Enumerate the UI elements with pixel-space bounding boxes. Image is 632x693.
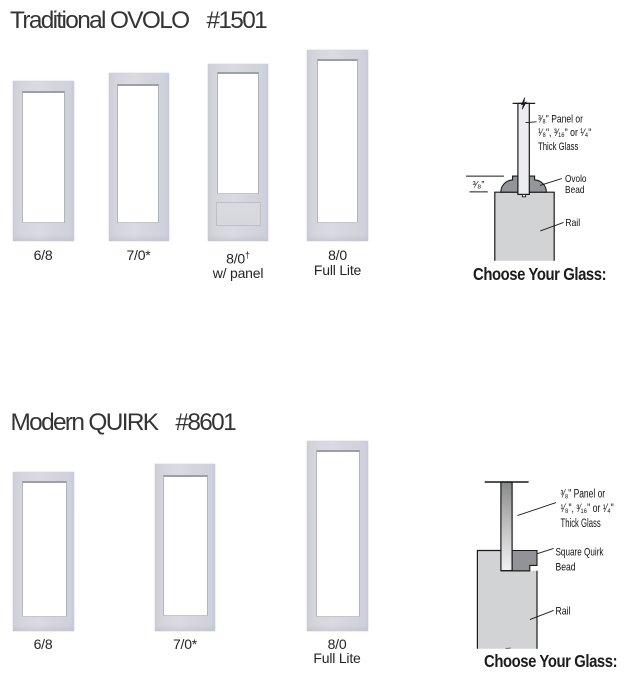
svg-text:Rail: Rail — [556, 606, 571, 618]
svg-text:³⁄₈" Panel or: ³⁄₈" Panel or — [538, 114, 583, 126]
svg-text:Bead: Bead — [556, 562, 576, 574]
svg-text:Thick Glass: Thick Glass — [561, 518, 601, 530]
svg-text:¹⁄₈", ³⁄₁₆" or ¹⁄₄": ¹⁄₈", ³⁄₁₆" or ¹⁄₄" — [538, 127, 591, 139]
svg-text:Rail: Rail — [565, 218, 580, 229]
svg-text:³⁄₈" Panel or: ³⁄₈" Panel or — [561, 489, 606, 501]
svg-text:Bead: Bead — [565, 185, 585, 196]
svg-text:Thick Glass: Thick Glass — [538, 141, 579, 153]
svg-text:¹⁄₈", ³⁄₁₆" or ¹⁄₄": ¹⁄₈", ³⁄₁₆" or ¹⁄₄" — [561, 503, 614, 515]
svg-text:Ovolo: Ovolo — [565, 174, 587, 185]
svg-text:Square Quirk: Square Quirk — [556, 547, 605, 559]
svg-text:³⁄₈”: ³⁄₈” — [473, 180, 485, 190]
